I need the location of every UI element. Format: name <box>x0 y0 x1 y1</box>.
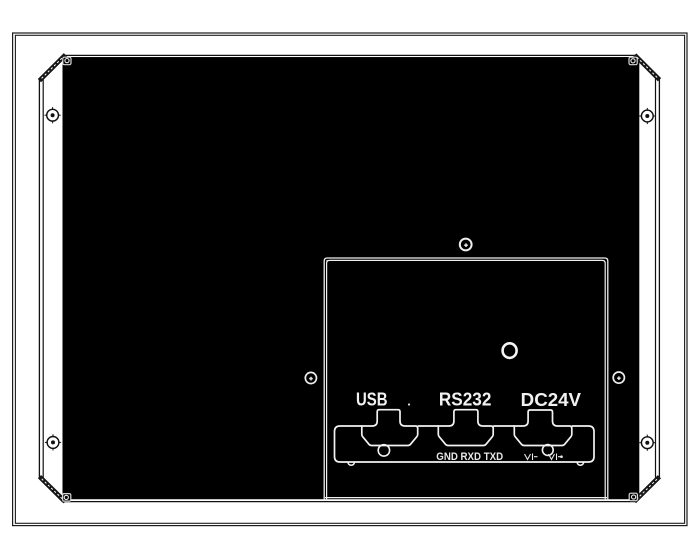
svg-text:DC24V: DC24V <box>521 390 581 410</box>
svg-text:USB: USB <box>356 390 388 410</box>
svg-text:RS232: RS232 <box>439 390 492 410</box>
svg-text:GND RXD TXD: GND RXD TXD <box>436 451 503 463</box>
